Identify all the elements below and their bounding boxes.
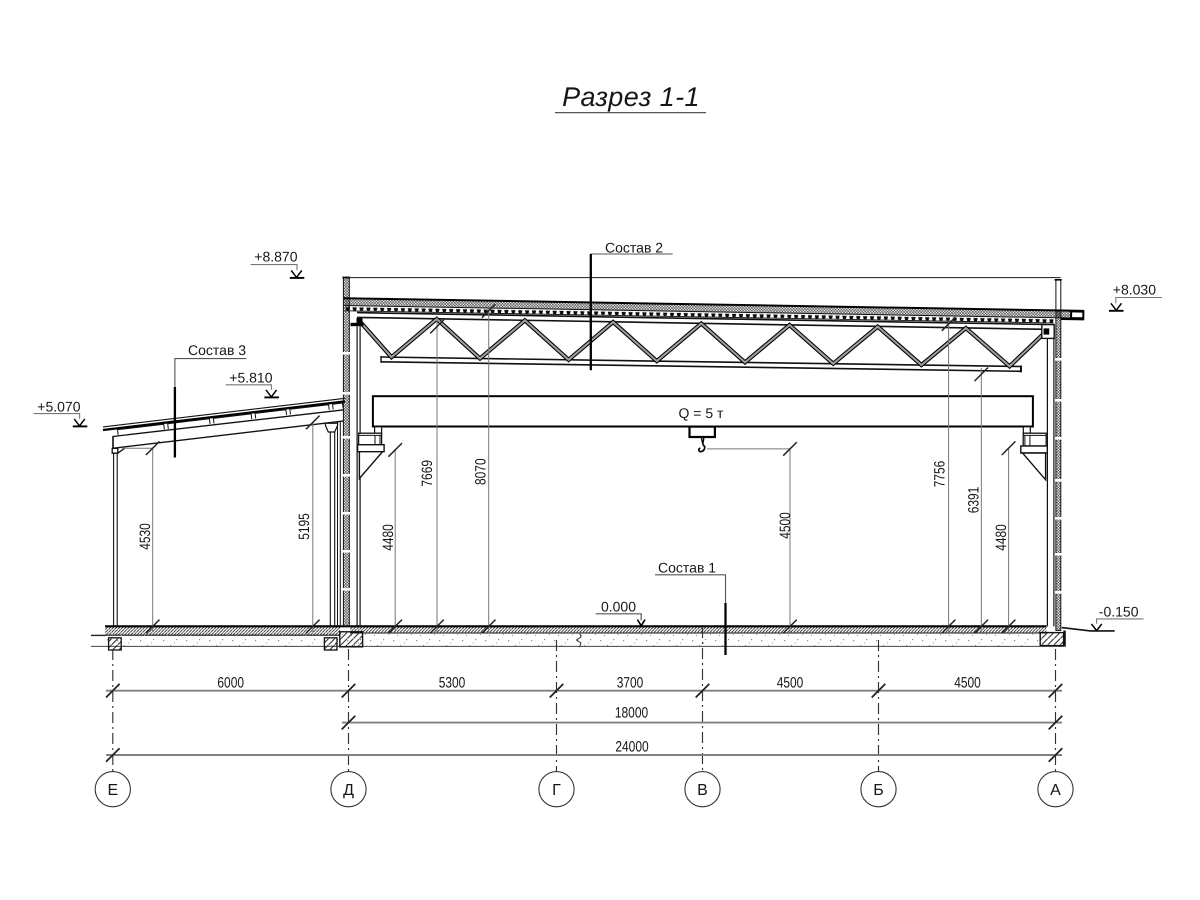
- svg-text:7669: 7669: [419, 460, 436, 487]
- svg-text:Состав 1: Состав 1: [658, 559, 716, 575]
- svg-text:0.000: 0.000: [601, 598, 636, 614]
- svg-text:4480: 4480: [380, 524, 397, 551]
- svg-text:4500: 4500: [777, 675, 804, 692]
- svg-text:Q = 5 т: Q = 5 т: [679, 405, 725, 421]
- svg-text:Разрез 1-1: Разрез 1-1: [562, 82, 700, 112]
- svg-text:3700: 3700: [617, 675, 644, 692]
- svg-text:7756: 7756: [932, 461, 949, 488]
- svg-text:+8.870: +8.870: [254, 248, 297, 264]
- svg-text:Состав 2: Состав 2: [605, 239, 663, 255]
- svg-text:Е: Е: [107, 782, 118, 799]
- svg-text:Д: Д: [343, 782, 354, 799]
- svg-text:4530: 4530: [137, 523, 154, 550]
- svg-text:4500: 4500: [777, 512, 794, 539]
- svg-text:-0.150: -0.150: [1099, 603, 1139, 619]
- svg-text:Г: Г: [552, 782, 561, 799]
- svg-text:+5.070: +5.070: [37, 398, 80, 414]
- svg-text:В: В: [697, 782, 708, 799]
- svg-text:А: А: [1050, 782, 1061, 799]
- svg-text:24000: 24000: [615, 738, 648, 755]
- svg-text:5300: 5300: [439, 675, 466, 692]
- svg-text:Б: Б: [873, 782, 884, 799]
- svg-text:4500: 4500: [954, 675, 981, 692]
- svg-text:18000: 18000: [615, 705, 648, 722]
- svg-text:+5.810: +5.810: [229, 369, 272, 385]
- svg-text:6391: 6391: [965, 487, 982, 514]
- svg-text:4480: 4480: [993, 524, 1010, 551]
- svg-text:+8.030: +8.030: [1113, 282, 1156, 298]
- svg-text:6000: 6000: [217, 675, 244, 692]
- svg-text:8070: 8070: [473, 458, 490, 485]
- svg-text:5195: 5195: [296, 513, 313, 540]
- svg-text:Состав 3: Состав 3: [188, 342, 246, 358]
